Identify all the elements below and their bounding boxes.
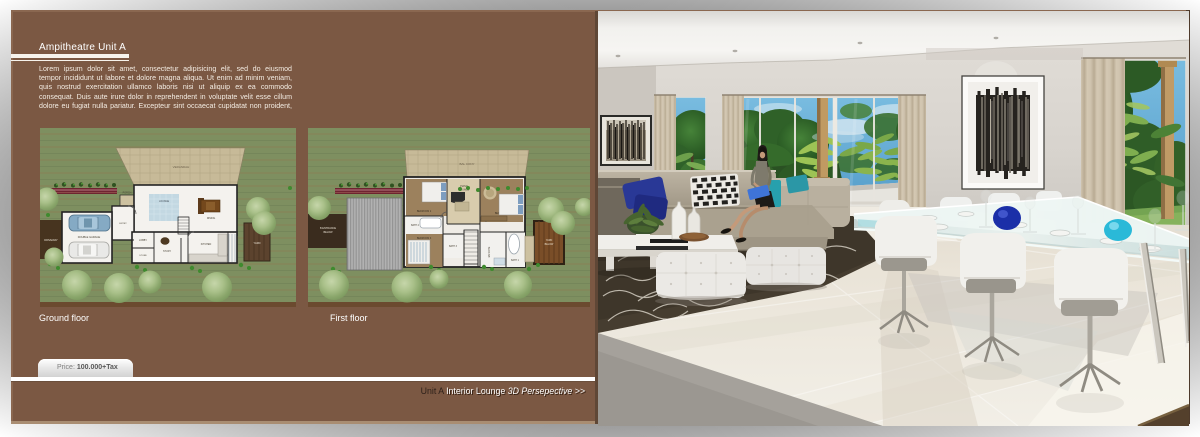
svg-text:BEDROOM 2: BEDROOM 2 xyxy=(417,210,432,213)
svg-text:YARD: YARD xyxy=(253,241,260,245)
svg-text:KITCHEN: KITCHEN xyxy=(201,243,212,246)
svg-text:PORCH: PORCH xyxy=(123,192,132,195)
svg-text:LOBBY: LOBBY xyxy=(139,239,147,242)
svg-text:BELOW: BELOW xyxy=(545,243,554,246)
svg-text:BATH 2: BATH 2 xyxy=(411,224,420,227)
svg-text:BELOW: BELOW xyxy=(323,231,333,234)
svg-text:VERANDAH: VERANDAH xyxy=(173,165,190,169)
svg-text:DINING: DINING xyxy=(207,217,216,220)
svg-text:DRIVEWAY: DRIVEWAY xyxy=(44,238,58,242)
svg-text:YARD: YARD xyxy=(546,239,553,242)
svg-text:BAL CONY: BAL CONY xyxy=(459,162,474,166)
svg-text:BEDROOM 3: BEDROOM 3 xyxy=(417,237,432,240)
svg-text:DOUBLE GARAGE: DOUBLE GARAGE xyxy=(78,235,101,239)
svg-text:LOUNGE: LOUNGE xyxy=(159,200,170,203)
svg-text:EN SUITE: EN SUITE xyxy=(489,246,491,257)
svg-text:STUDY: STUDY xyxy=(163,250,172,253)
svg-text:ENTRY: ENTRY xyxy=(119,223,127,225)
svg-text:STORE: STORE xyxy=(139,255,147,257)
svg-text:B ENTRANCE: B ENTRANCE xyxy=(320,227,336,230)
svg-text:BATH 1: BATH 1 xyxy=(511,259,520,262)
svg-text:BATH 3: BATH 3 xyxy=(449,245,458,248)
